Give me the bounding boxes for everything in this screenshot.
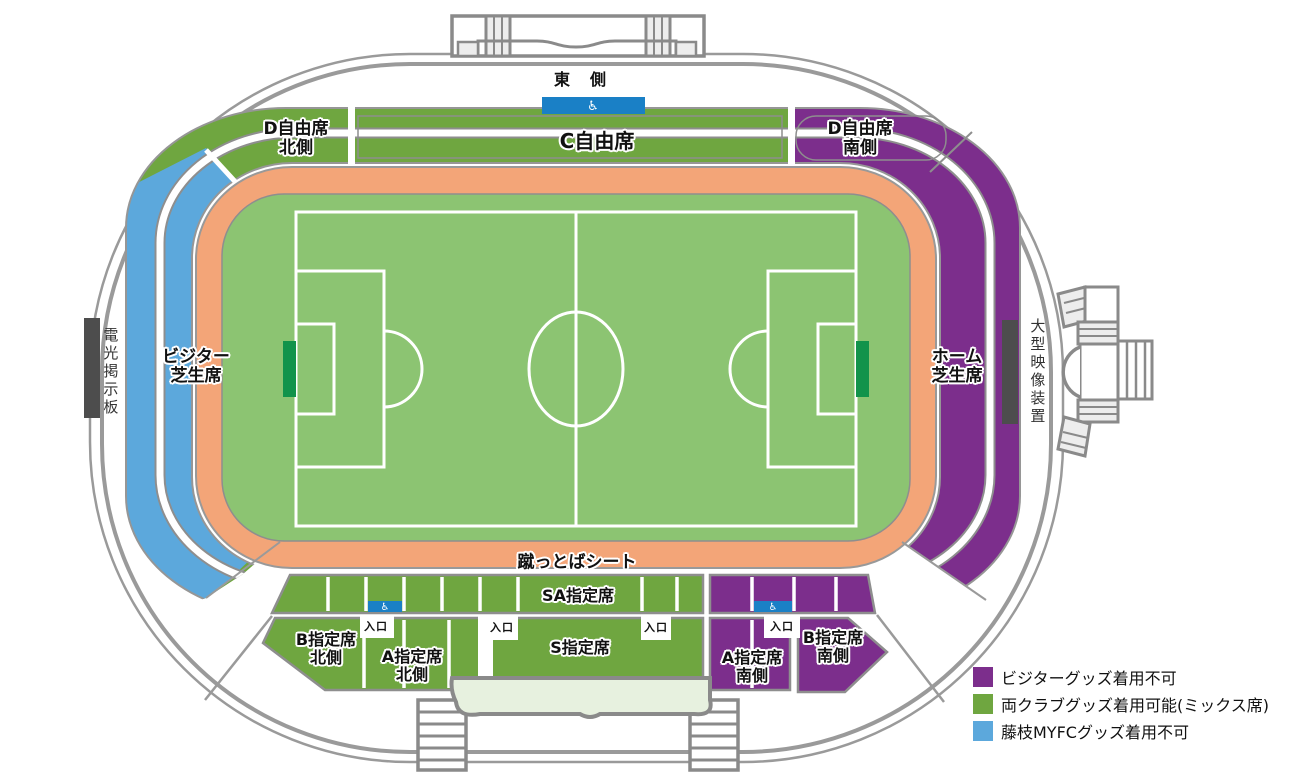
ring-divider xyxy=(788,106,795,168)
label-a-reserved-north: A指定席 北側 xyxy=(382,648,442,684)
label-kettoba-seat: 蹴っとばシート xyxy=(518,553,637,572)
scoreboard-panel xyxy=(84,318,100,418)
video-board-panel xyxy=(1002,320,1018,424)
ring-divider xyxy=(348,106,355,168)
goal-right xyxy=(856,341,869,397)
goal-left xyxy=(283,341,296,397)
pitch xyxy=(222,194,910,541)
label-visitor-lawn: ビジター 芝生席 xyxy=(162,348,230,386)
stadium-map-canvas: ♿ ♿ ♿ xyxy=(0,0,1297,777)
wheelchair-icon: ♿ xyxy=(381,602,390,613)
label-c-free: C自由席 xyxy=(560,130,635,152)
label-east-side: 東 側 xyxy=(554,71,608,89)
east-building xyxy=(452,16,704,56)
legend: ビジターグッズ着用不可 両クラブグッズ着用可能(ミックス席) 藤枝MYFCグッズ… xyxy=(973,663,1269,744)
label-a-reserved-south: A指定席 南側 xyxy=(722,649,782,685)
label-d-free-south: D自由席 南側 xyxy=(827,120,892,158)
legend-item-fujieda-goods: 藤枝MYFCグッズ着用不可 xyxy=(973,717,1269,744)
label-video-board: 大型映像装置 xyxy=(1029,318,1046,426)
label-d-free-north: D自由席 北側 xyxy=(263,120,328,158)
video-board-structure xyxy=(1058,287,1152,456)
wheelchair-icon: ♿ xyxy=(587,99,599,114)
label-scoreboard: 電光掲示板 xyxy=(102,327,119,417)
wheelchair-icon: ♿ xyxy=(769,602,778,613)
label-entrance-3: 入口 xyxy=(644,622,668,634)
stadium-seating-map: ♿ ♿ ♿ xyxy=(0,0,1297,777)
label-entrance-1: 入口 xyxy=(364,621,388,633)
legend-item-mixed: 両クラブグッズ着用可能(ミックス席) xyxy=(973,690,1269,717)
main-stand-building xyxy=(452,678,711,717)
legend-swatch-purple xyxy=(973,667,993,687)
walkway-line xyxy=(877,615,944,702)
label-entrance-4: 入口 xyxy=(770,621,794,633)
label-b-reserved-north: B指定席 北側 xyxy=(296,631,356,667)
label-home-lawn: ホーム 芝生席 xyxy=(932,348,983,386)
label-b-reserved-south: B指定席 南側 xyxy=(803,629,863,665)
legend-label: ビジターグッズ着用不可 xyxy=(1001,665,1177,689)
label-entrance-2: 入口 xyxy=(490,622,514,634)
walkway-line xyxy=(205,616,272,700)
legend-label: 両クラブグッズ着用可能(ミックス席) xyxy=(1001,692,1269,716)
legend-swatch-blue xyxy=(973,721,993,741)
label-sa-reserved: SA指定席 xyxy=(542,587,614,605)
section-s-sa-upper-green xyxy=(272,575,703,613)
legend-item-visitor-goods: ビジターグッズ着用不可 xyxy=(973,663,1269,690)
label-s-reserved: S指定席 xyxy=(550,639,610,657)
legend-swatch-green xyxy=(973,694,993,714)
legend-label: 藤枝MYFCグッズ着用不可 xyxy=(1001,719,1189,743)
